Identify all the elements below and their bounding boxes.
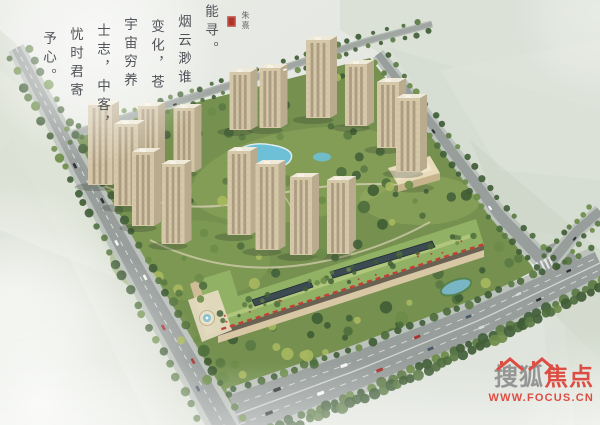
aerial-rendering: 朱熹 能寻。 烟云渺谁 变化，苍 宇宙穷养 士志，中客， 忧时君寄 予心。 搜狐… xyxy=(0,0,600,425)
scene-svg xyxy=(0,0,600,425)
water-feature xyxy=(313,153,331,162)
